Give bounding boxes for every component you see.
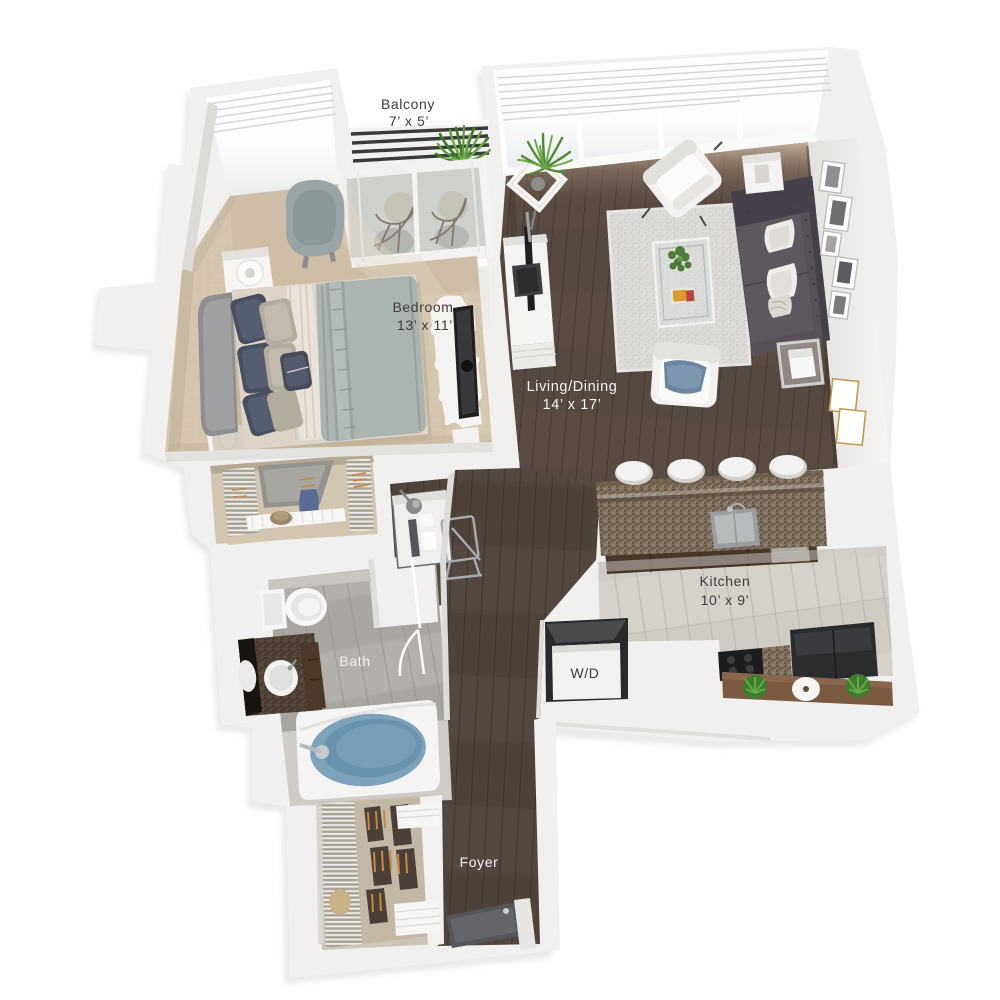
svg-text:10’ x 9’: 10’ x 9’ bbox=[701, 592, 750, 608]
svg-text:W/D: W/D bbox=[570, 665, 599, 681]
svg-text:Bath: Bath bbox=[339, 653, 370, 669]
svg-text:Bedroom: Bedroom bbox=[392, 299, 453, 315]
svg-text:13’ x 11’: 13’ x 11’ bbox=[397, 317, 453, 333]
svg-text:Living/Dining: Living/Dining bbox=[527, 379, 618, 395]
svg-text:14’ x 17’: 14’ x 17’ bbox=[543, 397, 602, 413]
svg-text:7’ x 5’: 7’ x 5’ bbox=[389, 113, 429, 129]
svg-text:Balcony: Balcony bbox=[381, 96, 435, 112]
svg-text:Kitchen: Kitchen bbox=[700, 573, 751, 589]
svg-text:Foyer: Foyer bbox=[460, 854, 499, 870]
